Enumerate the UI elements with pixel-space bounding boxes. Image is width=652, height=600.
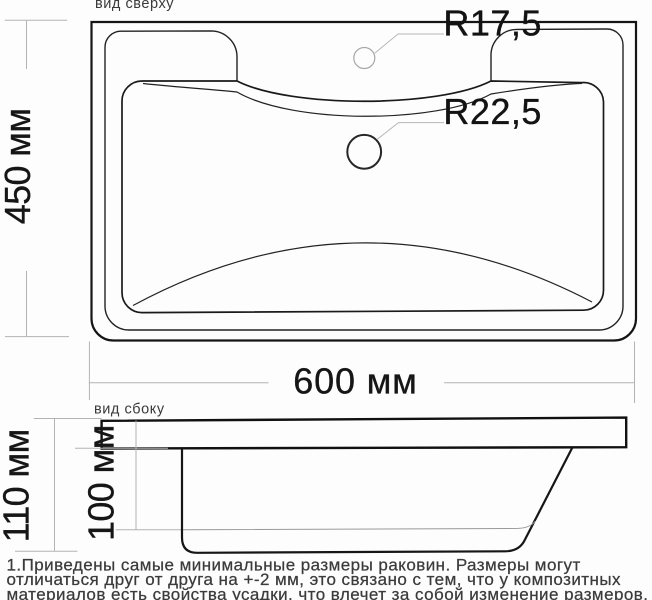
svg-text:материалов есть свойства усадк: материалов есть свойства усадки, что вле… [7, 585, 649, 600]
svg-text:R22,5: R22,5 [443, 91, 542, 132]
svg-text:R17,5: R17,5 [443, 3, 542, 44]
svg-text:600 мм: 600 мм [293, 360, 417, 401]
svg-text:110 мм: 110 мм [0, 429, 37, 542]
svg-text:вид сбоку: вид сбоку [94, 401, 165, 417]
svg-text:100 мм: 100 мм [81, 425, 122, 541]
svg-text:450 мм: 450 мм [0, 109, 38, 225]
svg-text:вид сверху: вид сверху [95, 0, 174, 12]
